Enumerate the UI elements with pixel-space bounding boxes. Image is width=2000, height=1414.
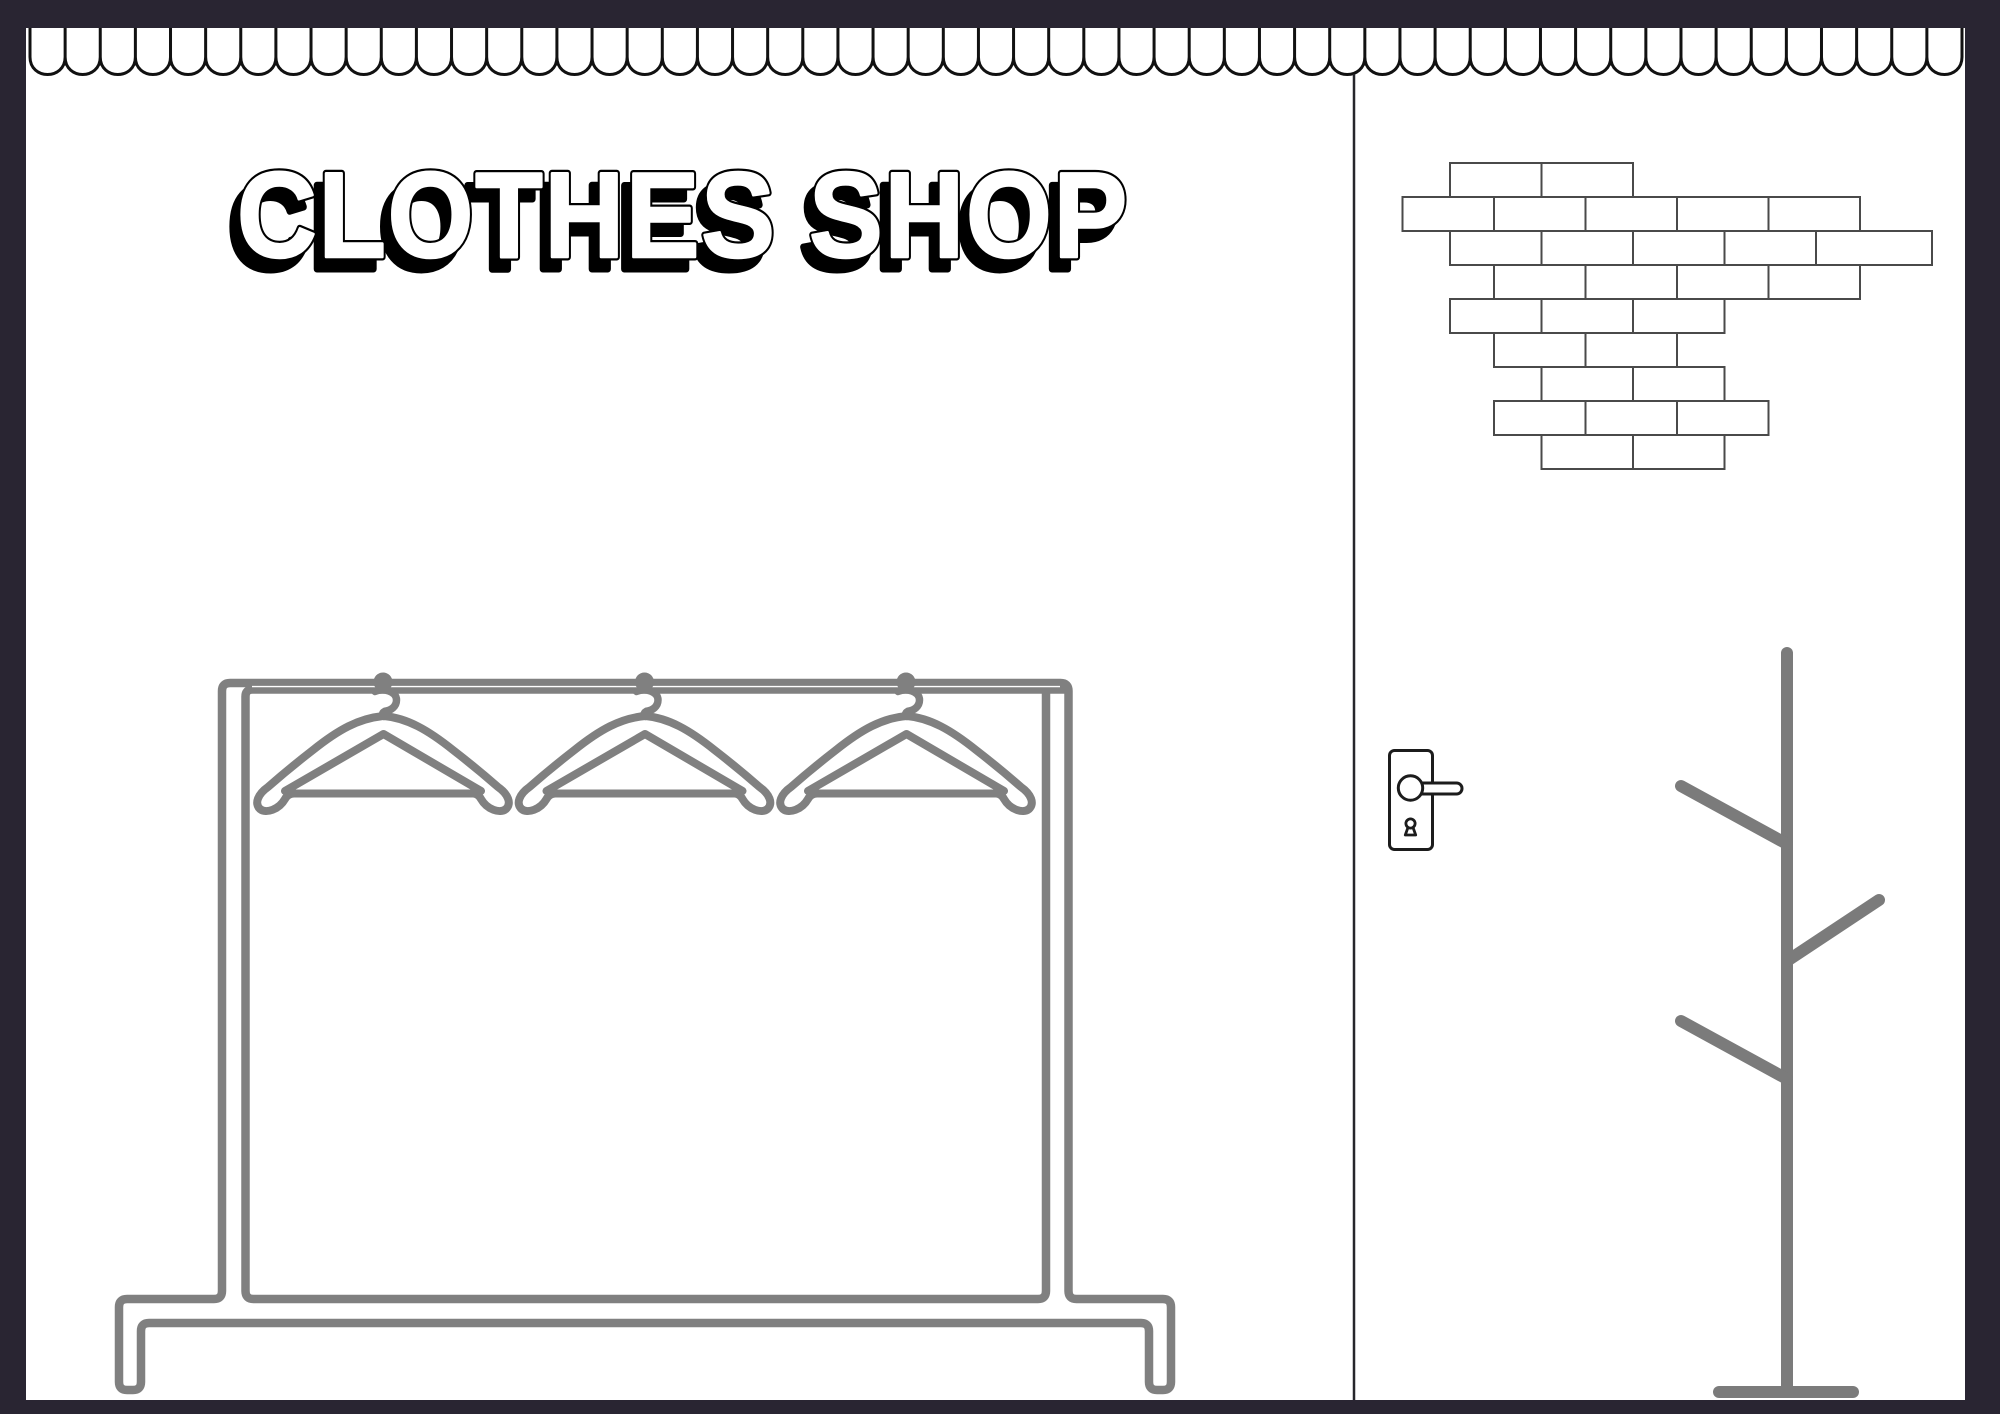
svg-text:CLOTHES SHOP: CLOTHES SHOP [237,147,1129,283]
